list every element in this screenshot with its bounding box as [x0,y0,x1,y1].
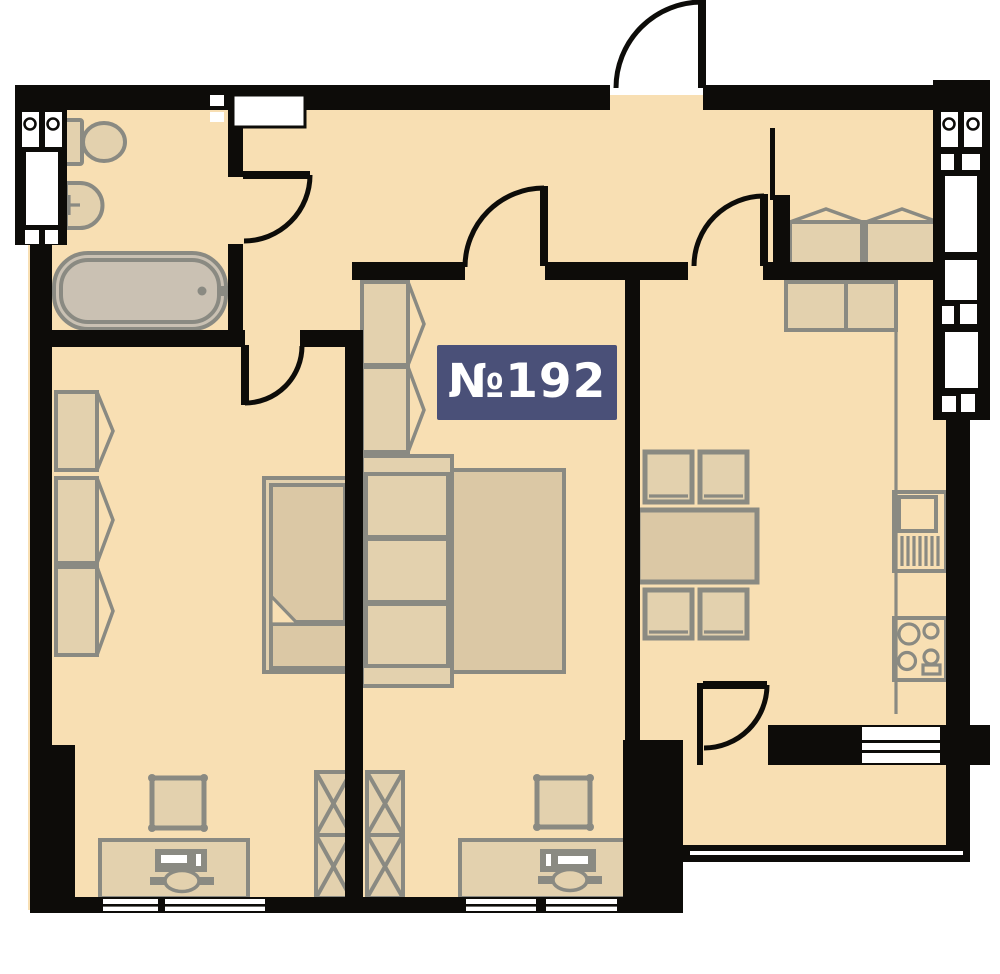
pillow-icon [366,539,448,602]
computer-button [196,854,201,866]
computer-screen [558,856,588,864]
single-bed-foot [271,624,348,668]
pillow-icon [366,474,448,537]
computer-screen [161,855,187,863]
window-icon [466,899,536,911]
chair-icon [148,774,208,832]
mouse-icon [553,870,587,891]
wardrobe-icon [56,392,97,470]
kitchen-cabinet-icon [846,282,896,330]
dining-chair-icon [645,452,692,502]
vent-cutout [210,112,224,122]
window-icon [233,95,305,127]
wardrobe-icon [56,567,97,655]
computer-button [546,854,551,866]
window-icon [103,899,158,911]
wall [15,85,610,110]
chair-icon [533,774,594,831]
toilet-icon [83,123,125,161]
kitchen-cabinet-icon [786,282,846,330]
floor-plan: №192 [0,0,1000,974]
unit-label: №192 [437,345,617,420]
wardrobe-icon [866,222,938,267]
floor-plan-svg: №192 [0,0,1000,974]
single-bed-blanket [271,485,345,622]
window-icon [862,727,940,763]
single-bed [264,478,352,672]
wall-closet [773,195,790,262]
mouse-icon [165,871,199,892]
wall-hallway [763,262,940,280]
wardrobe-icon [362,282,408,365]
wall [300,330,363,347]
balcony-railing-line [690,851,963,855]
wall-room-divider [625,280,640,740]
wall [703,85,955,110]
dining-table-icon [638,510,757,582]
wall [30,330,245,347]
wall-room-divider [345,347,363,897]
wall-hallway [545,262,688,280]
wall-hallway [352,262,465,280]
window-icon [546,899,617,911]
wall-thin-partition [770,128,775,200]
vent-cutout [210,95,224,106]
wall-corner-block [623,740,683,897]
dining-chair-icon [700,590,747,638]
shelving-x-unit [367,772,403,898]
wardrobe-icon [790,222,862,267]
entrance-door-icon [616,0,706,88]
wall [52,745,75,903]
wardrobe-icon [362,367,408,452]
window-icon [165,899,265,911]
wall-balcony [946,740,970,857]
double-bed [362,456,564,686]
wall-door-frame [697,683,703,765]
dining-chair-icon [645,590,692,638]
bathtub-drain-icon [198,287,207,296]
wall [946,420,970,725]
dining-set [638,452,757,638]
wardrobe-icon [56,478,97,563]
dining-chair-icon [700,452,747,502]
pillow-icon [366,604,448,666]
double-bed-icon [452,470,564,672]
unit-number: №192 [448,354,607,409]
